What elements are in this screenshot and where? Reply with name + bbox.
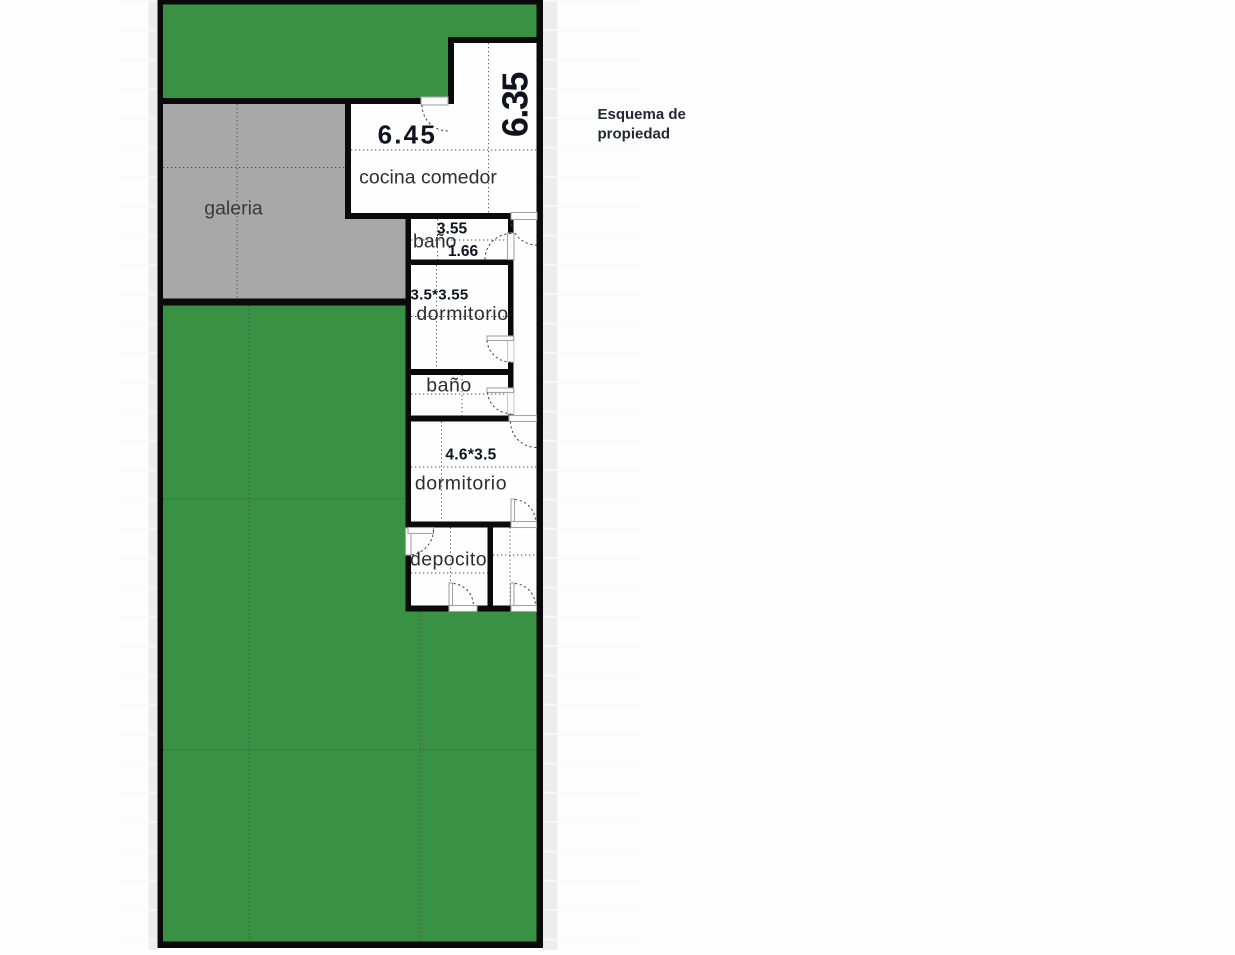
svg-text:galeria: galeria xyxy=(204,198,263,220)
svg-text:6.45: 6.45 xyxy=(378,120,437,150)
svg-text:propiedad: propiedad xyxy=(598,126,671,143)
svg-text:cocina comedor: cocina comedor xyxy=(359,167,497,189)
svg-text:4.6*3.5: 4.6*3.5 xyxy=(445,447,496,464)
svg-text:depocito: depocito xyxy=(410,549,487,571)
svg-text:dormitorio: dormitorio xyxy=(415,473,507,495)
svg-text:dormitorio: dormitorio xyxy=(416,303,508,325)
svg-text:Esquema de: Esquema de xyxy=(598,106,686,123)
svg-text:1.66: 1.66 xyxy=(448,243,479,260)
svg-text:3.5*3.55: 3.5*3.55 xyxy=(411,287,469,304)
svg-text:6.35: 6.35 xyxy=(494,72,535,138)
svg-text:baño: baño xyxy=(426,375,471,397)
